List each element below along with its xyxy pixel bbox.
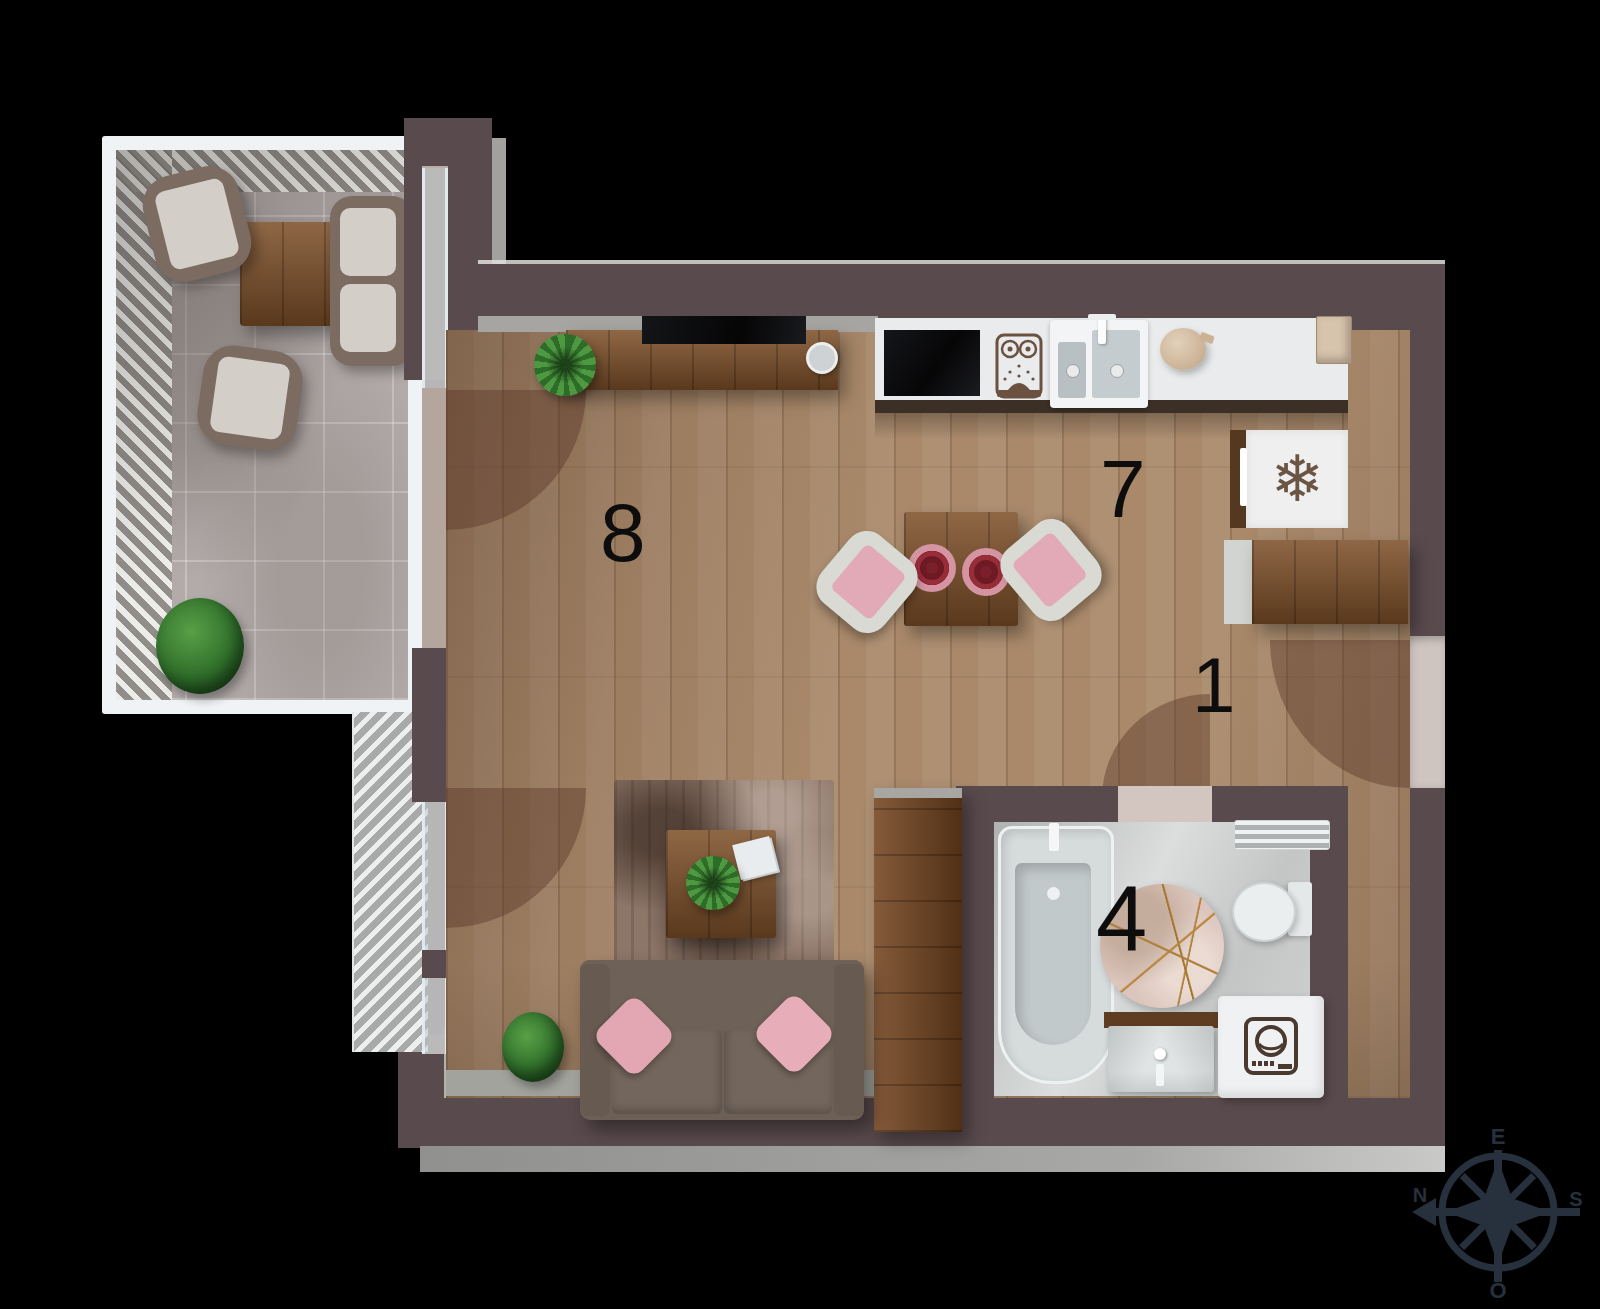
room-number-hall: 1 — [1192, 646, 1235, 724]
balcony-bush-plant — [156, 598, 244, 694]
plate-1 — [915, 551, 949, 585]
dishwasher-icon — [994, 332, 1044, 404]
washing-machine-icon — [1238, 1014, 1304, 1080]
vanity-tap — [1156, 1064, 1164, 1086]
tv — [642, 316, 806, 344]
vanity-sink — [1108, 1026, 1214, 1092]
compass-icon: E N S O — [1406, 1120, 1586, 1300]
bathroom-wall-top-1 — [994, 786, 1118, 822]
window-glass-mid — [422, 802, 448, 952]
compass-label-bottom: O — [1489, 1278, 1506, 1300]
bathtub-drain — [1047, 887, 1060, 900]
sink-faucet-handle — [1088, 314, 1116, 320]
sofa-armrest-right — [834, 964, 864, 1116]
cooktop — [884, 330, 980, 396]
room-number-living: 8 — [600, 492, 646, 574]
armchair-cushion — [209, 355, 291, 440]
loveseat-cushion-1 — [340, 208, 396, 276]
sideboard-cup — [806, 342, 838, 374]
chair-cushion-pink — [830, 543, 907, 621]
wardrobe — [874, 788, 962, 1132]
vanity-faucet — [1154, 1048, 1166, 1060]
balcony-armchair-2 — [194, 342, 307, 455]
fridge-handle — [1240, 448, 1247, 506]
floor-plan: ❄ — [0, 0, 1600, 1309]
sofa — [580, 960, 864, 1120]
sink-drain-1 — [1066, 364, 1080, 378]
coffee-table-plant — [686, 856, 740, 910]
washing-machine — [1218, 996, 1324, 1098]
window-glass-upper — [422, 168, 448, 388]
sideboard-plant — [534, 334, 596, 396]
towel-radiator — [1234, 820, 1330, 850]
kitchen-sink — [1050, 320, 1148, 408]
loveseat-cushion-2 — [340, 284, 396, 352]
room-number-bathroom: 4 — [1096, 872, 1147, 964]
toilet-bowl — [1232, 882, 1296, 942]
compass-label-left: N — [1413, 1184, 1427, 1206]
snowflake-icon: ❄ — [1270, 447, 1324, 511]
bathtub-faucet — [1049, 823, 1059, 851]
balcony-loveseat — [330, 196, 414, 366]
hall-cabinet-endcap — [1224, 540, 1252, 624]
floor-slab-edge — [420, 1146, 1445, 1172]
room-number-kitchen: 7 — [1100, 448, 1146, 530]
compass-label-right: S — [1569, 1188, 1582, 1210]
window-glass-lower — [422, 978, 448, 1054]
compass-label-top: E — [1491, 1124, 1506, 1149]
entrance-doorway-pocket — [1406, 636, 1445, 788]
kettle — [1160, 328, 1206, 370]
plate-2 — [969, 555, 1003, 589]
armchair-cushion — [153, 177, 240, 272]
bathroom-door-threshold — [1118, 786, 1212, 822]
fridge: ❄ — [1246, 430, 1348, 528]
living-floor-plant — [502, 1012, 564, 1082]
toilet — [1232, 878, 1314, 942]
chair-cushion-pink — [1011, 531, 1088, 609]
sink-drain-2 — [1110, 364, 1124, 378]
wall-mullion-block — [422, 950, 448, 978]
kitchen-wall-unit — [1316, 316, 1352, 364]
hall-cabinet — [1252, 540, 1408, 624]
